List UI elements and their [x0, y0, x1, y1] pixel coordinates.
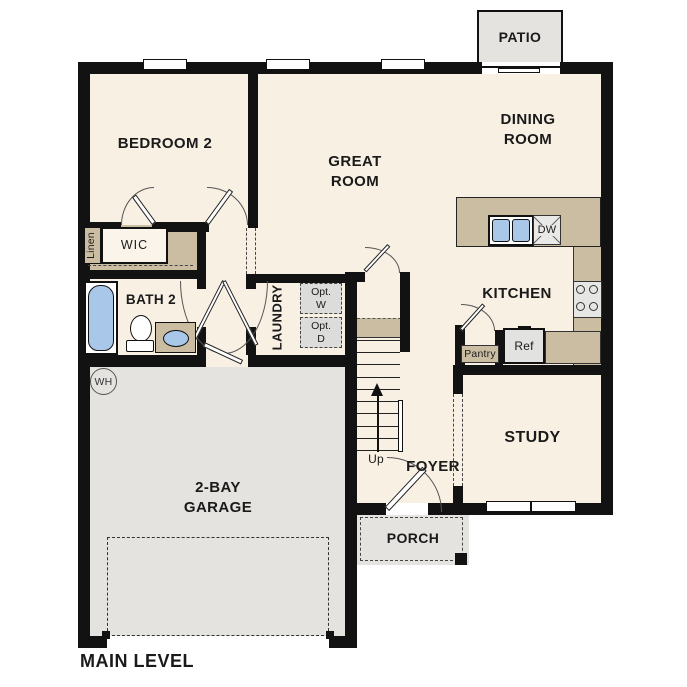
- opt-washer-line1: Opt.: [301, 286, 341, 299]
- bathtub: [88, 285, 114, 351]
- refrigerator: Ref: [503, 328, 545, 364]
- wall-bedroom-divider: [248, 62, 258, 228]
- window-study-1: [486, 501, 531, 512]
- wic-shelf-dashed: [88, 265, 193, 267]
- burner: [576, 285, 585, 294]
- patio-slider-panel: [498, 68, 540, 73]
- burner: [589, 302, 598, 311]
- opt-dryer-line1: Opt.: [301, 320, 341, 333]
- ref-label: Ref: [505, 330, 543, 362]
- garage-line2: GARAGE: [168, 498, 268, 518]
- opt-washer-line2: W: [301, 299, 341, 312]
- garage-door-dashed: [107, 537, 329, 636]
- stair-tread: [357, 364, 400, 365]
- stair-arrow-head: [371, 383, 383, 396]
- wall-study-left-top: [453, 375, 463, 394]
- window-bedroom: [143, 59, 187, 70]
- stair-rail: [398, 400, 403, 452]
- optional-washer: Opt. W: [300, 283, 342, 314]
- wall-study-left-bottom: [453, 486, 463, 506]
- burner: [576, 302, 585, 311]
- pantry-label: Pantry: [464, 348, 496, 360]
- study-label: STUDY: [480, 428, 585, 449]
- dining-room-line2: ROOM: [478, 130, 578, 150]
- window-greatroom-2: [381, 59, 425, 70]
- burner: [589, 285, 598, 294]
- pantry-shelf: Pantry: [461, 345, 499, 363]
- stair-tread: [357, 352, 400, 353]
- toilet-tank: [126, 340, 154, 352]
- wall-right: [601, 62, 613, 515]
- kitchen-corner-counter: [545, 331, 601, 364]
- laundry-label: LAUNDRY: [270, 277, 287, 357]
- foyer-label: FOYER: [402, 457, 464, 477]
- water-heater: WH: [90, 368, 117, 395]
- cased-opening-hall: [246, 228, 256, 274]
- wall-stair-right: [400, 272, 410, 352]
- wic-label: WIC: [101, 227, 168, 264]
- stair-tread: [357, 377, 400, 378]
- patio-label: PATIO: [499, 28, 542, 46]
- porch-post: [455, 553, 467, 565]
- dishwasher-label: DW: [538, 225, 557, 236]
- opt-dryer-line2: D: [301, 333, 341, 346]
- bath2-label: BATH 2: [120, 291, 182, 309]
- wall-wic-bath-divider: [84, 270, 200, 279]
- plan-title: MAIN LEVEL: [80, 650, 320, 673]
- toilet-bowl: [130, 315, 152, 342]
- window-greatroom-1: [266, 59, 310, 70]
- kitchen-label: KITCHEN: [462, 284, 572, 304]
- stair-landing: [357, 318, 401, 338]
- great-room-line2: ROOM: [303, 172, 407, 192]
- wall-stair-foyer-left: [345, 272, 357, 636]
- stair-tread: [357, 340, 400, 341]
- bedroom2-label: BEDROOM 2: [95, 134, 235, 154]
- island-sink-basin-right: [512, 219, 530, 242]
- great-room-line1: GREAT: [303, 152, 407, 172]
- patio-area: PATIO: [477, 10, 563, 65]
- dining-room-line1: DINING: [478, 110, 578, 130]
- garage-line1: 2-BAY: [168, 478, 268, 498]
- window-study-2: [531, 501, 576, 512]
- stove: [573, 281, 602, 318]
- wall-kitchen-study-divider: [453, 365, 613, 375]
- great-room-label: GREAT ROOM: [303, 152, 407, 191]
- water-heater-label: WH: [91, 369, 116, 395]
- island-sink-basin-left: [492, 219, 510, 242]
- porch-label: PORCH: [357, 529, 469, 547]
- dining-room-label: DINING ROOM: [478, 110, 578, 149]
- floor-plan: PATIO PORCH: [0, 0, 687, 687]
- dishwasher: DW: [533, 215, 561, 245]
- linen-label: Linen: [85, 227, 100, 264]
- ref-handle: [518, 326, 531, 329]
- garage-door-jamb-right: [326, 631, 334, 639]
- bath-sink: [163, 330, 189, 347]
- wall-stair-top-stub: [352, 272, 365, 282]
- optional-dryer: Opt. D: [300, 317, 342, 348]
- garage-label: 2-BAY GARAGE: [168, 478, 268, 517]
- stair-arrow-line: [377, 392, 379, 452]
- garage-door-jamb-left: [102, 631, 110, 639]
